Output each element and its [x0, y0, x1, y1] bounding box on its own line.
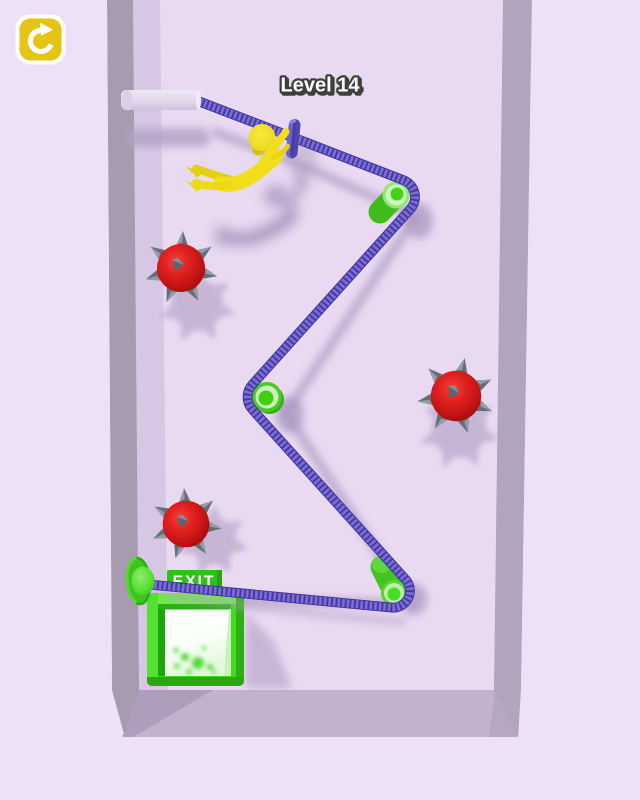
svg-text:Level 14: Level 14	[281, 75, 361, 97]
